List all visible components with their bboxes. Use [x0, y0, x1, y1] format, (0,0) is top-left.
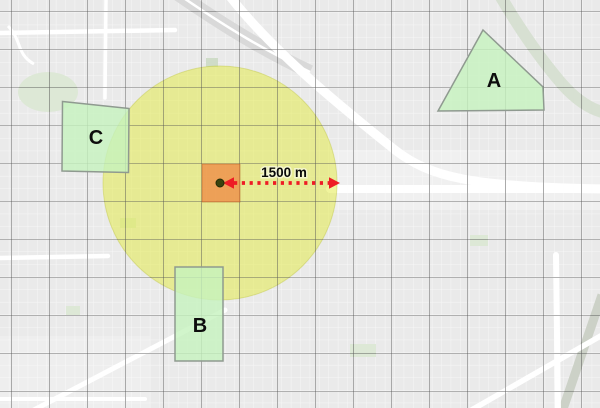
- zone-c-label: C: [89, 127, 103, 149]
- zone-b-polygon[interactable]: [175, 267, 223, 361]
- map-view[interactable]: A B C 1500 m: [0, 0, 600, 408]
- distance-label: 1500 m: [261, 165, 307, 180]
- zone-b-label: B: [193, 315, 207, 337]
- zone-a-label: A: [487, 70, 501, 92]
- center-dot[interactable]: [216, 179, 224, 187]
